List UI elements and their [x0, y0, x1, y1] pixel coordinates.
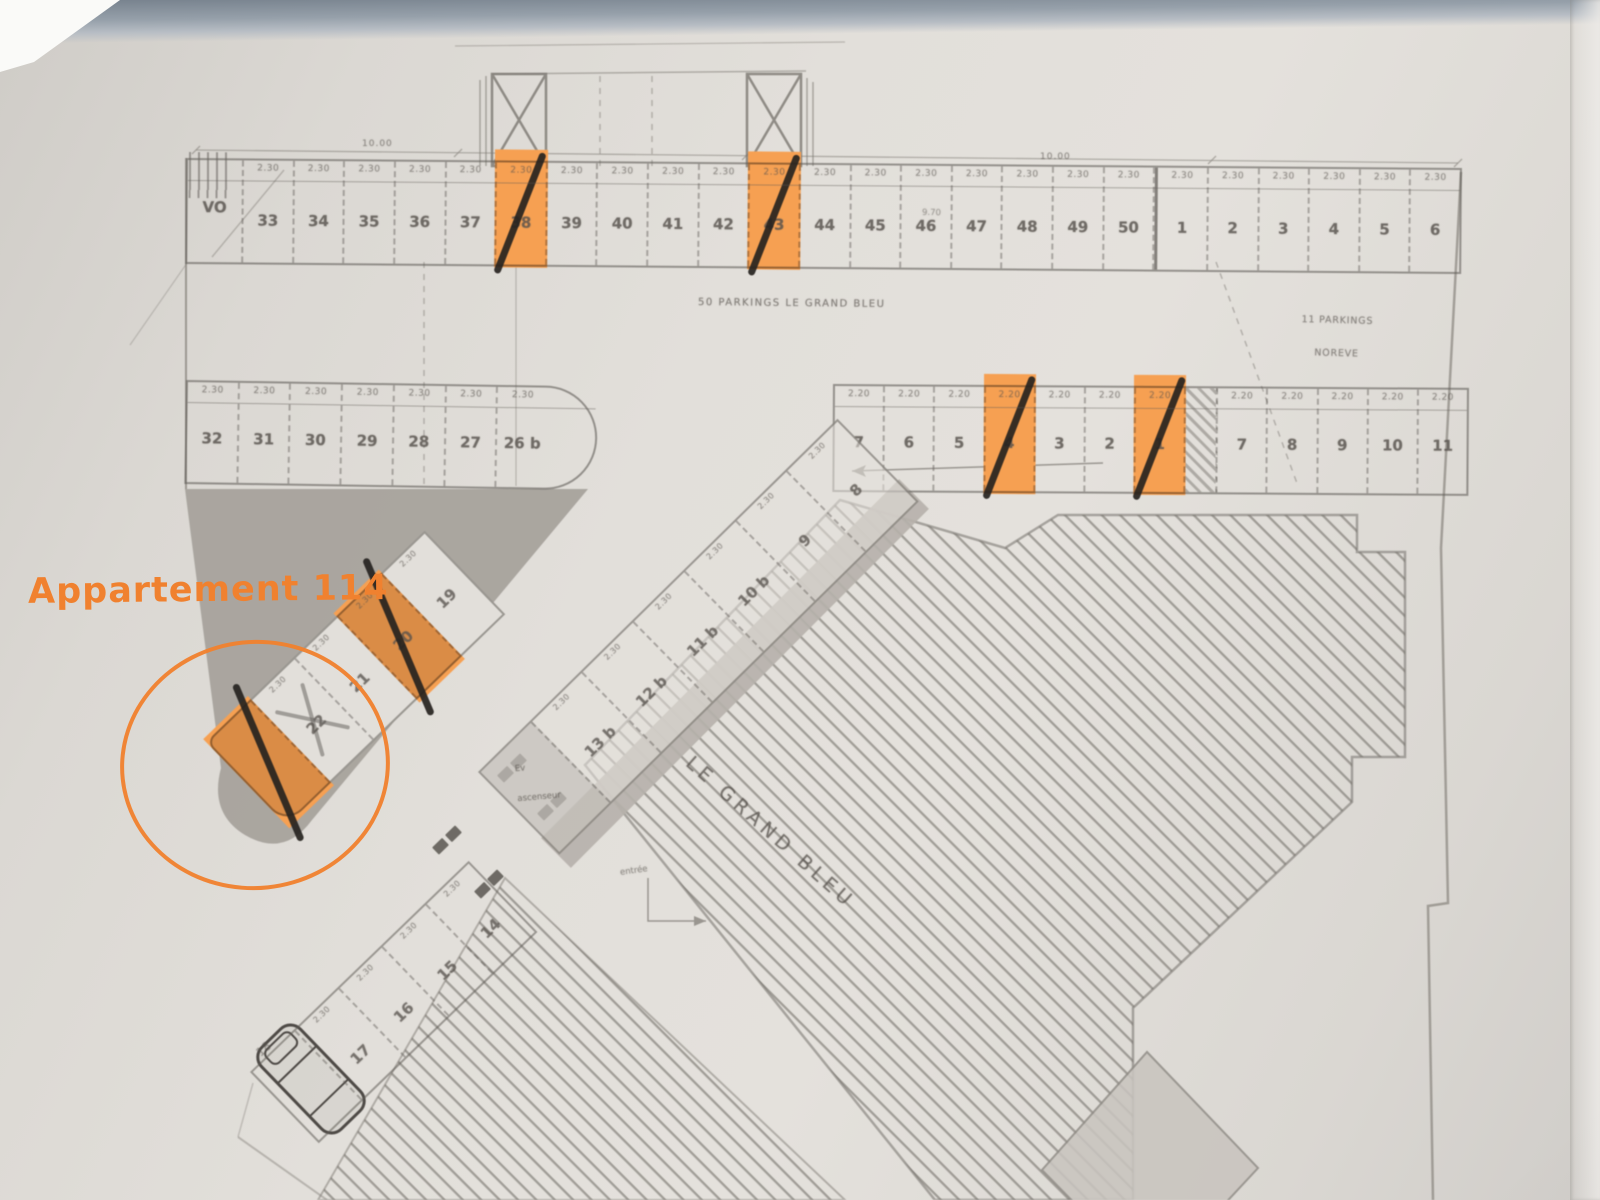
stall-number: 42: [699, 215, 748, 233]
stall-number: 38: [497, 213, 546, 231]
stall-width-dimension: 2.30: [750, 167, 799, 177]
parking-stall: 2.30 41: [648, 164, 699, 266]
stall-number: 6: [885, 433, 933, 451]
mid-dimension: 9.70: [922, 208, 941, 218]
stall-number: 35: [345, 212, 394, 230]
parking-stall: 2.30 27: [445, 386, 498, 487]
stall-number: 40: [598, 214, 647, 232]
stall-number: 11: [1418, 437, 1466, 455]
stall-number: 6: [1411, 221, 1460, 239]
stall-number: 44: [800, 216, 849, 234]
stall-width-dimension: 2.30: [291, 387, 341, 398]
second-row-left: 2.30 32 2.30 31 2.30 30 2.30 29 2.30 28 …: [184, 380, 598, 490]
parking-stall: 2.30 4: [1309, 169, 1360, 271]
overall-dimension-right: 10.00: [1040, 152, 1071, 162]
stall-width-dimension: 2.30: [239, 386, 289, 397]
stall-width-dimension: 2.30: [1158, 171, 1207, 181]
parking-stall: 2.20 5: [935, 387, 986, 491]
stall-number: 2: [1085, 435, 1133, 453]
stall-number: 30: [290, 431, 340, 450]
stall-number: 43: [750, 215, 799, 233]
parking-stall: 2.20 1: [1135, 388, 1186, 492]
stall-width-dimension: 2.30: [851, 168, 900, 178]
stall-width-dimension: 2.30: [801, 168, 850, 178]
stall-number: 27: [446, 433, 496, 452]
parking-stall: 2.30 30: [290, 384, 343, 485]
stall-width-dimension: 2.20: [1419, 393, 1467, 403]
stall-number: 41: [648, 215, 697, 233]
parking-stall: 2.20 7: [1218, 388, 1269, 492]
parking-stall: 2.30 40: [598, 163, 649, 265]
stall-width-dimension: 2.30: [497, 165, 546, 175]
stall-width-dimension: 2.30: [446, 165, 495, 175]
stall-number: 8: [825, 459, 887, 521]
stall-number: 4: [985, 434, 1033, 452]
photo-of-parking-plan: VO 2.30 33 2.30 34 2.30 35 2.30 36 2.30 …: [0, 0, 1600, 1200]
stall-number: 3: [1259, 219, 1308, 237]
parking-stall: 2.20 3: [1035, 387, 1086, 491]
right-border: [1428, 172, 1461, 1200]
parking-stall: 2.30 3: [1259, 168, 1310, 270]
stall-width-dimension: 2.30: [498, 390, 548, 401]
noreve-label-line1: 11 PARKINGS: [1272, 313, 1402, 327]
stall-number: 9: [774, 510, 836, 572]
stall-number: 12 b: [620, 660, 682, 722]
stall-width-dimension: 2.30: [598, 166, 647, 176]
stall-width-dimension: 2.30: [295, 164, 344, 174]
stall-number: 5: [935, 434, 983, 452]
parking-stall: [1186, 388, 1219, 492]
elevator-label-line1: Ev: [514, 756, 611, 774]
stall-width-dimension: 2.30: [649, 167, 698, 177]
stall-number: 16: [377, 986, 432, 1040]
stall-number: 7: [1218, 435, 1266, 453]
parking-stall: 2.30 48: [1003, 166, 1054, 268]
parking-stall: 2.30 32: [186, 382, 239, 483]
parking-stall: 2.30 39: [547, 163, 598, 265]
parking-stall: 2.30 37: [446, 162, 497, 264]
parking-stall: 2.30 2: [1208, 168, 1259, 270]
parking-stall: 2.30 42: [699, 164, 750, 266]
stall-number: 50: [1104, 218, 1153, 236]
parking-stall: 2.20 8: [1268, 389, 1319, 493]
paper-right-edge: [1570, 0, 1600, 1200]
stall-width-dimension: 2.20: [1268, 392, 1316, 402]
stall-width-dimension: 2.30: [699, 167, 748, 177]
stall-number: VO: [188, 198, 242, 216]
stall-number: 19: [419, 572, 474, 626]
grand-bleu-parkings-label: 50 PARKINGS LE GRAND BLEU: [698, 297, 886, 310]
parking-stall: 2.30 1: [1154, 168, 1208, 270]
parking-stall: 2.20 10: [1368, 389, 1419, 493]
parking-stall: 2.30 31: [238, 383, 291, 484]
parking-stall: 2.30 34: [294, 161, 345, 263]
stall-width-dimension: 2.30: [1361, 172, 1410, 182]
stall-number: 34: [294, 212, 343, 230]
parking-stall: 2.30 49: [1053, 167, 1104, 269]
stall-number: 11 b: [671, 610, 733, 672]
stall-number: 8: [1268, 436, 1316, 454]
stall-number: [282, 1062, 324, 1103]
parking-stall: 2.30 36: [395, 162, 446, 264]
parking-stall: 2.30 47: [952, 166, 1003, 268]
pencil-plan-layer: VO 2.30 33 2.30 34 2.30 35 2.30 36 2.30 …: [0, 0, 1600, 1200]
stall-width-dimension: 2.30: [396, 165, 445, 175]
stall-width-dimension: 2.30: [953, 169, 1002, 179]
parking-stall: 2.30 33: [243, 160, 294, 262]
parking-stall: VO: [187, 160, 244, 262]
parking-stall: 2.30 5: [1360, 169, 1411, 271]
stall-width-dimension: 2.20: [1136, 391, 1184, 401]
stall-width-dimension: 2.20: [985, 390, 1033, 400]
stall-number: 33: [243, 211, 292, 229]
stall-number: 32: [187, 429, 237, 448]
elevator-box-label: Ev ascenseur: [513, 736, 616, 824]
noreve-parkings-label: 11 PARKINGS NOREVE: [1271, 291, 1403, 382]
parking-stall: 2.30 28: [393, 385, 446, 486]
top-parking-row: VO 2.30 33 2.30 34 2.30 35 2.30 36 2.30 …: [185, 158, 1462, 274]
stall-number: 47: [952, 217, 1001, 235]
stall-width-dimension: 2.30: [446, 389, 496, 400]
stall-width-dimension: 2.30: [345, 164, 394, 174]
stall-number: 46: [902, 217, 951, 235]
parking-stall: 2.20 4: [985, 387, 1036, 491]
stall-number: 1: [1136, 435, 1184, 453]
parking-stall: 2.30 44: [800, 165, 851, 267]
stall-width-dimension: 2.30: [1209, 171, 1258, 181]
stall-number: 2: [1208, 219, 1257, 237]
stall-number: 31: [239, 430, 289, 449]
stall-width-dimension: 2.30: [343, 387, 393, 398]
stall-number: 5: [1360, 220, 1409, 238]
stall-width-dimension: 2.30: [244, 163, 293, 173]
stall-number: 49: [1053, 218, 1102, 236]
stall-number: 10 b: [723, 560, 785, 622]
parking-stall: 2.30 6: [1411, 170, 1460, 272]
stall-number: 17: [333, 1028, 388, 1082]
stall-width-dimension: 2.30: [395, 388, 445, 399]
stall-number: 21: [333, 656, 388, 710]
stall-width-dimension: 2.20: [1218, 391, 1266, 401]
parking-stall: 2.20 11: [1418, 390, 1467, 494]
stall-width-dimension: 2.30: [1003, 169, 1052, 179]
stall-number: 28: [394, 432, 444, 451]
stall-width-dimension: 2.30: [1104, 170, 1153, 180]
stall-number: 15: [420, 944, 475, 998]
noreve-label-line2: NOREVE: [1271, 346, 1401, 360]
stall-width-dimension: 2.30: [1259, 171, 1308, 181]
stall-number: 48: [1003, 217, 1052, 235]
elevator-label-line2: ascenseur: [517, 786, 614, 804]
stall-number: 45: [851, 216, 900, 234]
stall-width-dimension: 2.30: [902, 169, 951, 179]
overall-dimension-left: 10.00: [362, 139, 393, 149]
parking-stall: 2.30 29: [342, 384, 395, 485]
stall-number: 20: [376, 614, 431, 668]
second-row-right: 2.20 7 2.20 6 2.20 5 2.20 4 2.20 3 2.20 …: [832, 384, 1469, 496]
stall-number: [238, 732, 280, 773]
stall-width-dimension: 2.30: [1411, 173, 1460, 183]
parking-stall: 2.30 38: [496, 162, 547, 264]
stall-number: 10: [1368, 436, 1416, 454]
stall-width-dimension: 2.30: [188, 385, 238, 396]
stall-width-dimension: 2.20: [835, 389, 883, 399]
stall-width-dimension: 2.20: [1036, 390, 1084, 400]
stall-number: 26 b: [497, 434, 547, 453]
parking-stall: 2.30 45: [851, 165, 902, 267]
stall-number: 14: [463, 902, 518, 956]
stall-width-dimension: 2.20: [935, 390, 983, 400]
stall-number: 39: [547, 214, 596, 232]
stall-number: 3: [1035, 434, 1083, 452]
parking-stall: 2.30 35: [344, 161, 395, 263]
parking-stall: 2.20 9: [1318, 389, 1369, 493]
parking-stall: 2.30 50: [1104, 167, 1155, 269]
parking-stall: 2.30 26 b: [497, 387, 548, 488]
stall-number: 9: [1318, 436, 1366, 454]
stall-number: 1: [1158, 219, 1207, 237]
stall-width-dimension: 2.20: [1086, 391, 1134, 401]
stall-width-dimension: 2.20: [1369, 392, 1417, 402]
stall-width-dimension: 2.20: [1318, 392, 1366, 402]
stall-width-dimension: 2.20: [885, 389, 933, 399]
stall-width-dimension: 2.30: [1310, 172, 1359, 182]
stall-number: 36: [395, 213, 444, 231]
stall-number: 22: [289, 698, 344, 752]
stall-number: 29: [342, 431, 392, 450]
parking-stall: 2.30 43: [749, 164, 800, 266]
parking-stall: 2.20 2: [1085, 388, 1136, 492]
stall-number: 37: [446, 213, 495, 231]
stall-width-dimension: 2.30: [1054, 170, 1103, 180]
stall-number: 4: [1310, 220, 1359, 238]
stall-width-dimension: 2.30: [548, 166, 597, 176]
